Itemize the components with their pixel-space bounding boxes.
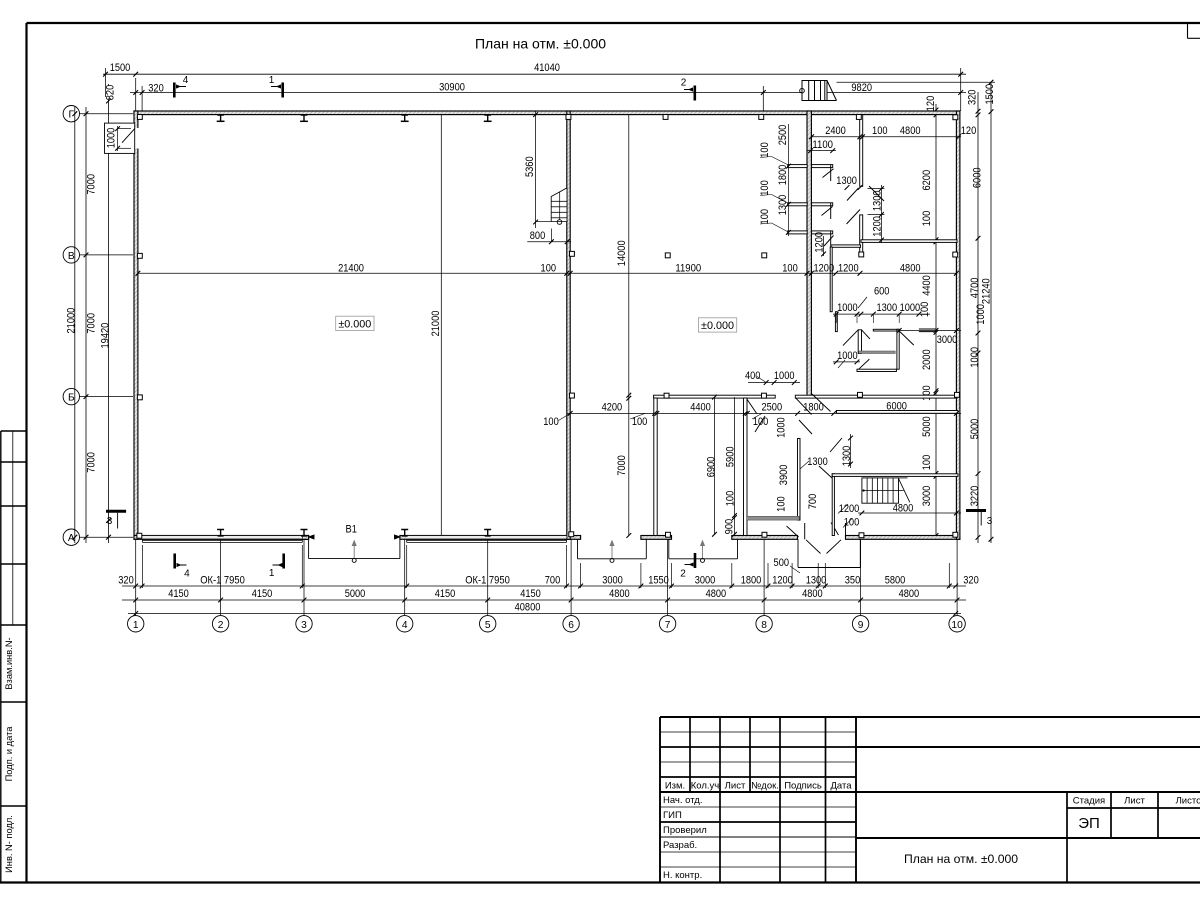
svg-text:100: 100 bbox=[632, 416, 648, 428]
svg-text:3: 3 bbox=[301, 620, 307, 631]
svg-text:1000: 1000 bbox=[776, 417, 788, 438]
svg-text:320: 320 bbox=[148, 83, 164, 95]
svg-text:7000: 7000 bbox=[86, 174, 98, 195]
svg-text:В: В bbox=[68, 251, 75, 262]
svg-text:4800: 4800 bbox=[893, 503, 914, 515]
svg-text:4150: 4150 bbox=[520, 588, 541, 600]
svg-text:1200: 1200 bbox=[838, 262, 859, 274]
svg-text:7000: 7000 bbox=[86, 313, 98, 334]
svg-text:3900: 3900 bbox=[778, 465, 790, 486]
svg-text:100: 100 bbox=[844, 517, 860, 529]
svg-text:320: 320 bbox=[118, 575, 134, 587]
svg-text:Лист: Лист bbox=[1124, 795, 1145, 806]
svg-text:820: 820 bbox=[105, 85, 117, 101]
svg-text:1200: 1200 bbox=[839, 503, 860, 515]
svg-text:120: 120 bbox=[961, 125, 977, 137]
svg-text:Лист: Лист bbox=[725, 780, 746, 791]
svg-text:320: 320 bbox=[966, 90, 978, 106]
svg-text:Взам.инв.N-: Взам.инв.N- bbox=[4, 637, 14, 689]
svg-text:±0.000: ±0.000 bbox=[338, 318, 371, 330]
svg-text:100: 100 bbox=[543, 416, 559, 428]
svg-text:План на отм. ±0.000: План на отм. ±0.000 bbox=[904, 852, 1018, 866]
svg-text:6900: 6900 bbox=[705, 457, 717, 478]
svg-text:4400: 4400 bbox=[921, 275, 933, 296]
svg-text:320: 320 bbox=[963, 575, 979, 587]
svg-text:6000: 6000 bbox=[886, 401, 907, 413]
svg-text:ГИП: ГИП bbox=[663, 810, 682, 821]
svg-text:41040: 41040 bbox=[534, 62, 560, 74]
svg-text:Проверил: Проверил bbox=[663, 825, 707, 836]
svg-text:8: 8 bbox=[761, 620, 767, 631]
svg-text:3000: 3000 bbox=[921, 486, 933, 507]
svg-text:1: 1 bbox=[269, 75, 275, 86]
svg-text:1200: 1200 bbox=[814, 232, 826, 253]
svg-text:21240: 21240 bbox=[981, 278, 993, 304]
svg-text:ОК-1 7950: ОК-1 7950 bbox=[200, 575, 245, 587]
svg-text:5: 5 bbox=[485, 620, 491, 631]
svg-text:Дата: Дата bbox=[830, 780, 852, 791]
svg-text:700: 700 bbox=[807, 494, 819, 510]
svg-text:1300: 1300 bbox=[807, 456, 828, 468]
svg-text:2: 2 bbox=[681, 78, 687, 89]
svg-text:ОК-1 7950: ОК-1 7950 bbox=[465, 575, 510, 587]
svg-text:Кол.уч: Кол.уч bbox=[691, 780, 720, 791]
svg-text:4800: 4800 bbox=[609, 588, 630, 600]
svg-text:Разраб.: Разраб. bbox=[663, 840, 697, 851]
svg-text:4150: 4150 bbox=[168, 588, 189, 600]
svg-text:1550: 1550 bbox=[648, 575, 669, 587]
svg-text:1200: 1200 bbox=[871, 216, 883, 237]
svg-text:100: 100 bbox=[759, 209, 771, 225]
svg-text:ЭП: ЭП bbox=[1078, 815, 1100, 832]
svg-text:3000: 3000 bbox=[602, 575, 623, 587]
svg-text:4: 4 bbox=[402, 620, 408, 631]
svg-text:4800: 4800 bbox=[706, 588, 727, 600]
svg-text:100: 100 bbox=[759, 142, 771, 158]
svg-text:100: 100 bbox=[759, 180, 771, 196]
svg-text:1300: 1300 bbox=[871, 191, 883, 212]
svg-text:6200: 6200 bbox=[921, 170, 933, 191]
svg-text:Н. контр.: Н. контр. bbox=[663, 870, 702, 881]
svg-text:2500: 2500 bbox=[777, 125, 789, 146]
svg-text:9: 9 bbox=[858, 620, 864, 631]
svg-text:4: 4 bbox=[184, 568, 190, 579]
svg-text:1000: 1000 bbox=[774, 370, 795, 382]
svg-text:21400: 21400 bbox=[338, 262, 364, 274]
svg-text:100: 100 bbox=[541, 262, 557, 274]
svg-text:21000: 21000 bbox=[430, 311, 442, 337]
svg-text:Изм.: Изм. bbox=[665, 780, 685, 791]
svg-text:1500: 1500 bbox=[110, 62, 131, 74]
svg-text:400: 400 bbox=[745, 370, 761, 382]
svg-text:1300: 1300 bbox=[841, 446, 853, 467]
svg-text:1: 1 bbox=[133, 620, 139, 631]
svg-text:10: 10 bbox=[951, 620, 963, 631]
svg-text:700: 700 bbox=[545, 575, 561, 587]
svg-text:1200: 1200 bbox=[772, 575, 793, 587]
svg-text:5800: 5800 bbox=[885, 575, 906, 587]
svg-text:4200: 4200 bbox=[602, 401, 623, 413]
svg-text:4800: 4800 bbox=[899, 588, 920, 600]
svg-text:5000: 5000 bbox=[345, 588, 366, 600]
svg-text:№док.: №док. bbox=[751, 780, 779, 791]
svg-text:100: 100 bbox=[776, 496, 788, 512]
svg-text:100: 100 bbox=[872, 125, 888, 137]
svg-text:4800: 4800 bbox=[900, 262, 921, 274]
svg-text:21000: 21000 bbox=[65, 308, 77, 334]
svg-text:4150: 4150 bbox=[435, 588, 456, 600]
svg-text:1300: 1300 bbox=[836, 175, 857, 187]
svg-text:1000: 1000 bbox=[837, 302, 858, 314]
svg-text:4700: 4700 bbox=[969, 278, 981, 299]
svg-text:5000: 5000 bbox=[969, 419, 981, 440]
svg-text:900: 900 bbox=[723, 519, 735, 535]
svg-text:600: 600 bbox=[874, 286, 890, 298]
svg-text:100: 100 bbox=[921, 455, 933, 471]
svg-text:Стадия: Стадия bbox=[1073, 795, 1105, 806]
svg-text:Подпись: Подпись bbox=[784, 780, 822, 791]
svg-text:350: 350 bbox=[845, 575, 861, 587]
svg-text:Нач. отд.: Нач. отд. bbox=[663, 795, 702, 806]
svg-text:4800: 4800 bbox=[900, 125, 921, 137]
svg-text:100: 100 bbox=[753, 416, 769, 428]
svg-text:1100: 1100 bbox=[812, 139, 833, 151]
svg-text:3: 3 bbox=[107, 516, 113, 527]
svg-text:7000: 7000 bbox=[86, 452, 98, 473]
svg-text:30900: 30900 bbox=[439, 82, 465, 94]
svg-text:1000: 1000 bbox=[106, 128, 118, 149]
svg-text:4150: 4150 bbox=[252, 588, 273, 600]
svg-text:2: 2 bbox=[218, 620, 224, 631]
svg-text:Подп. и дата: Подп. и дата bbox=[4, 726, 14, 782]
svg-text:1000: 1000 bbox=[837, 350, 858, 362]
svg-text:2400: 2400 bbox=[825, 125, 846, 137]
svg-text:1000: 1000 bbox=[975, 304, 987, 325]
svg-text:1500: 1500 bbox=[984, 84, 996, 105]
svg-text:3220: 3220 bbox=[969, 486, 981, 507]
svg-text:4400: 4400 bbox=[690, 401, 711, 413]
svg-text:В1: В1 bbox=[346, 524, 357, 536]
svg-text:5000: 5000 bbox=[921, 416, 933, 437]
svg-text:4: 4 bbox=[183, 75, 189, 86]
svg-text:11900: 11900 bbox=[675, 262, 701, 274]
svg-text:1000: 1000 bbox=[900, 302, 921, 314]
svg-text:1: 1 bbox=[269, 568, 275, 579]
svg-text:1300: 1300 bbox=[877, 302, 898, 314]
svg-text:1800: 1800 bbox=[803, 401, 824, 413]
svg-text:7000: 7000 bbox=[616, 455, 628, 476]
svg-text:План на отм. ±0.000: План на отм. ±0.000 bbox=[475, 36, 606, 52]
svg-text:19420: 19420 bbox=[99, 323, 111, 349]
svg-text:1300: 1300 bbox=[806, 575, 827, 587]
svg-text:4800: 4800 bbox=[802, 588, 823, 600]
svg-text:±0.000: ±0.000 bbox=[701, 320, 734, 332]
svg-text:5360: 5360 bbox=[524, 156, 536, 177]
svg-text:3000: 3000 bbox=[695, 575, 716, 587]
svg-text:100: 100 bbox=[919, 302, 931, 318]
svg-text:Инв. N- подл.: Инв. N- подл. bbox=[4, 815, 14, 873]
svg-text:7: 7 bbox=[665, 620, 671, 631]
svg-text:100: 100 bbox=[782, 262, 798, 274]
svg-text:800: 800 bbox=[530, 230, 546, 242]
svg-text:2000: 2000 bbox=[921, 349, 933, 370]
svg-text:2500: 2500 bbox=[762, 401, 783, 413]
svg-text:40800: 40800 bbox=[515, 602, 541, 614]
svg-text:120: 120 bbox=[925, 96, 937, 112]
svg-text:6: 6 bbox=[568, 620, 574, 631]
svg-text:100: 100 bbox=[921, 211, 933, 227]
svg-text:1000: 1000 bbox=[969, 347, 981, 368]
svg-text:2: 2 bbox=[680, 568, 686, 579]
svg-text:1200: 1200 bbox=[814, 262, 835, 274]
svg-text:9820: 9820 bbox=[851, 82, 872, 94]
svg-text:1800: 1800 bbox=[741, 575, 762, 587]
svg-text:3000: 3000 bbox=[937, 334, 958, 346]
svg-text:Б: Б bbox=[68, 393, 75, 404]
svg-text:6000: 6000 bbox=[972, 168, 984, 189]
svg-text:14000: 14000 bbox=[616, 240, 628, 266]
svg-text:Листов: Листов bbox=[1176, 795, 1200, 806]
svg-text:3: 3 bbox=[987, 516, 993, 527]
svg-text:500: 500 bbox=[774, 557, 790, 569]
